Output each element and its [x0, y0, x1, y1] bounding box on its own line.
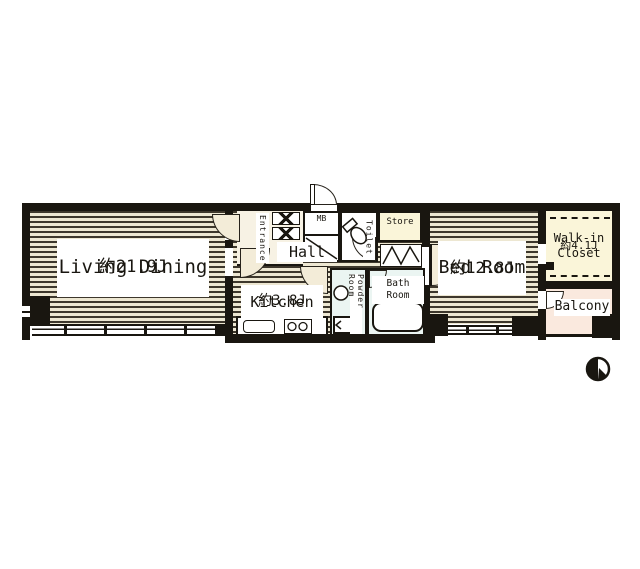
compass-north-icon: [587, 358, 609, 380]
shoe-cabinet: [272, 212, 300, 225]
stove-icon: [284, 319, 312, 334]
balcony-railing: [546, 334, 620, 337]
pillar-living-bottom-left: [24, 296, 50, 326]
wall-vent-slit: [22, 306, 30, 311]
living-dining-label: Living Dining 約21.9J: [57, 239, 209, 297]
shoe-cabinet: [272, 227, 300, 240]
window-bedroom: [448, 325, 512, 335]
hall-label: Hall: [277, 242, 337, 262]
opening-living-lower: [225, 248, 233, 276]
wall-closet-bottom: [538, 281, 620, 289]
bathtub-icon: [372, 302, 424, 332]
kitchen-label: Kitchen 約3.8J: [241, 285, 323, 319]
opening-closet: [538, 244, 546, 264]
opening-balcony-door: [538, 291, 546, 309]
wall-bedroom-right: [538, 203, 546, 340]
walk-in-closet-label: Walk-in Closet 約4.1J: [548, 222, 610, 270]
bed-room-label: Bed Room 約12.8J: [438, 241, 526, 295]
closet-bifold: [380, 244, 422, 267]
balcony-label: Balcony: [554, 299, 610, 316]
closet-hanger-pipe: [550, 217, 610, 219]
meter-box-label: MB: [305, 213, 338, 225]
entrance-door-leaf: [310, 184, 315, 205]
entrance-door-swing: [313, 184, 337, 205]
bath-room-label: Bath Room: [372, 276, 424, 304]
floor-plan: Living Dining 約21.9J Bed Room 約12.8J Hal…: [0, 0, 640, 569]
meter-box-divider: [305, 234, 338, 236]
closet-hanger-pipe: [550, 275, 610, 277]
living-dining-area: 約21.9J: [99, 257, 167, 278]
walk-in-closet-area: 約4.1J: [560, 239, 598, 253]
window-living: [32, 324, 215, 336]
store-label: Store: [379, 216, 421, 230]
door-bedroom-leaf: [429, 244, 432, 286]
bed-room-area: 約12.8J: [450, 258, 514, 278]
kitchen-sink-icon: [243, 320, 275, 333]
kitchen-area: 約3.8J: [258, 293, 306, 311]
entrance-label: Entrance: [256, 213, 269, 263]
toilet-label: Toilet: [363, 214, 375, 260]
pillar-bedroom-bottom-left: [422, 314, 448, 336]
powder-room-label: Powder Room: [350, 274, 362, 334]
wall-vent-slit: [22, 313, 30, 317]
pillar-bedroom-bottom-right: [512, 316, 538, 336]
